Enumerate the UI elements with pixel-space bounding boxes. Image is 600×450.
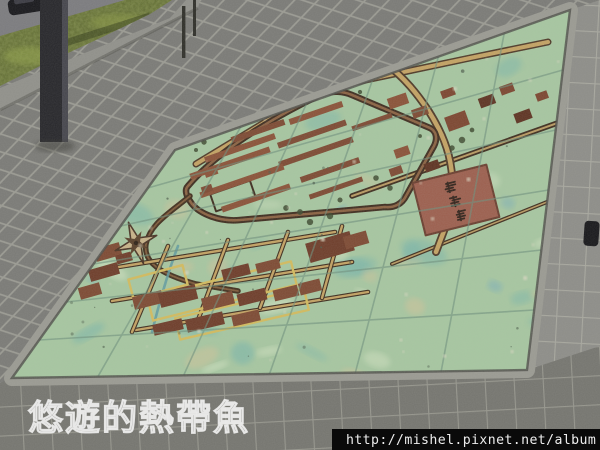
watermark-text: 悠遊的熱帶魚 <box>28 399 250 439</box>
url-text: http://mishel.pixnet.net/album <box>346 433 596 448</box>
url-bar: http://mishel.pixnet.net/album <box>332 429 600 450</box>
photo-root: 悠遊的熱帶魚 http://mishel.pixnet.net/album <box>0 0 600 450</box>
photo-grain <box>0 0 600 450</box>
